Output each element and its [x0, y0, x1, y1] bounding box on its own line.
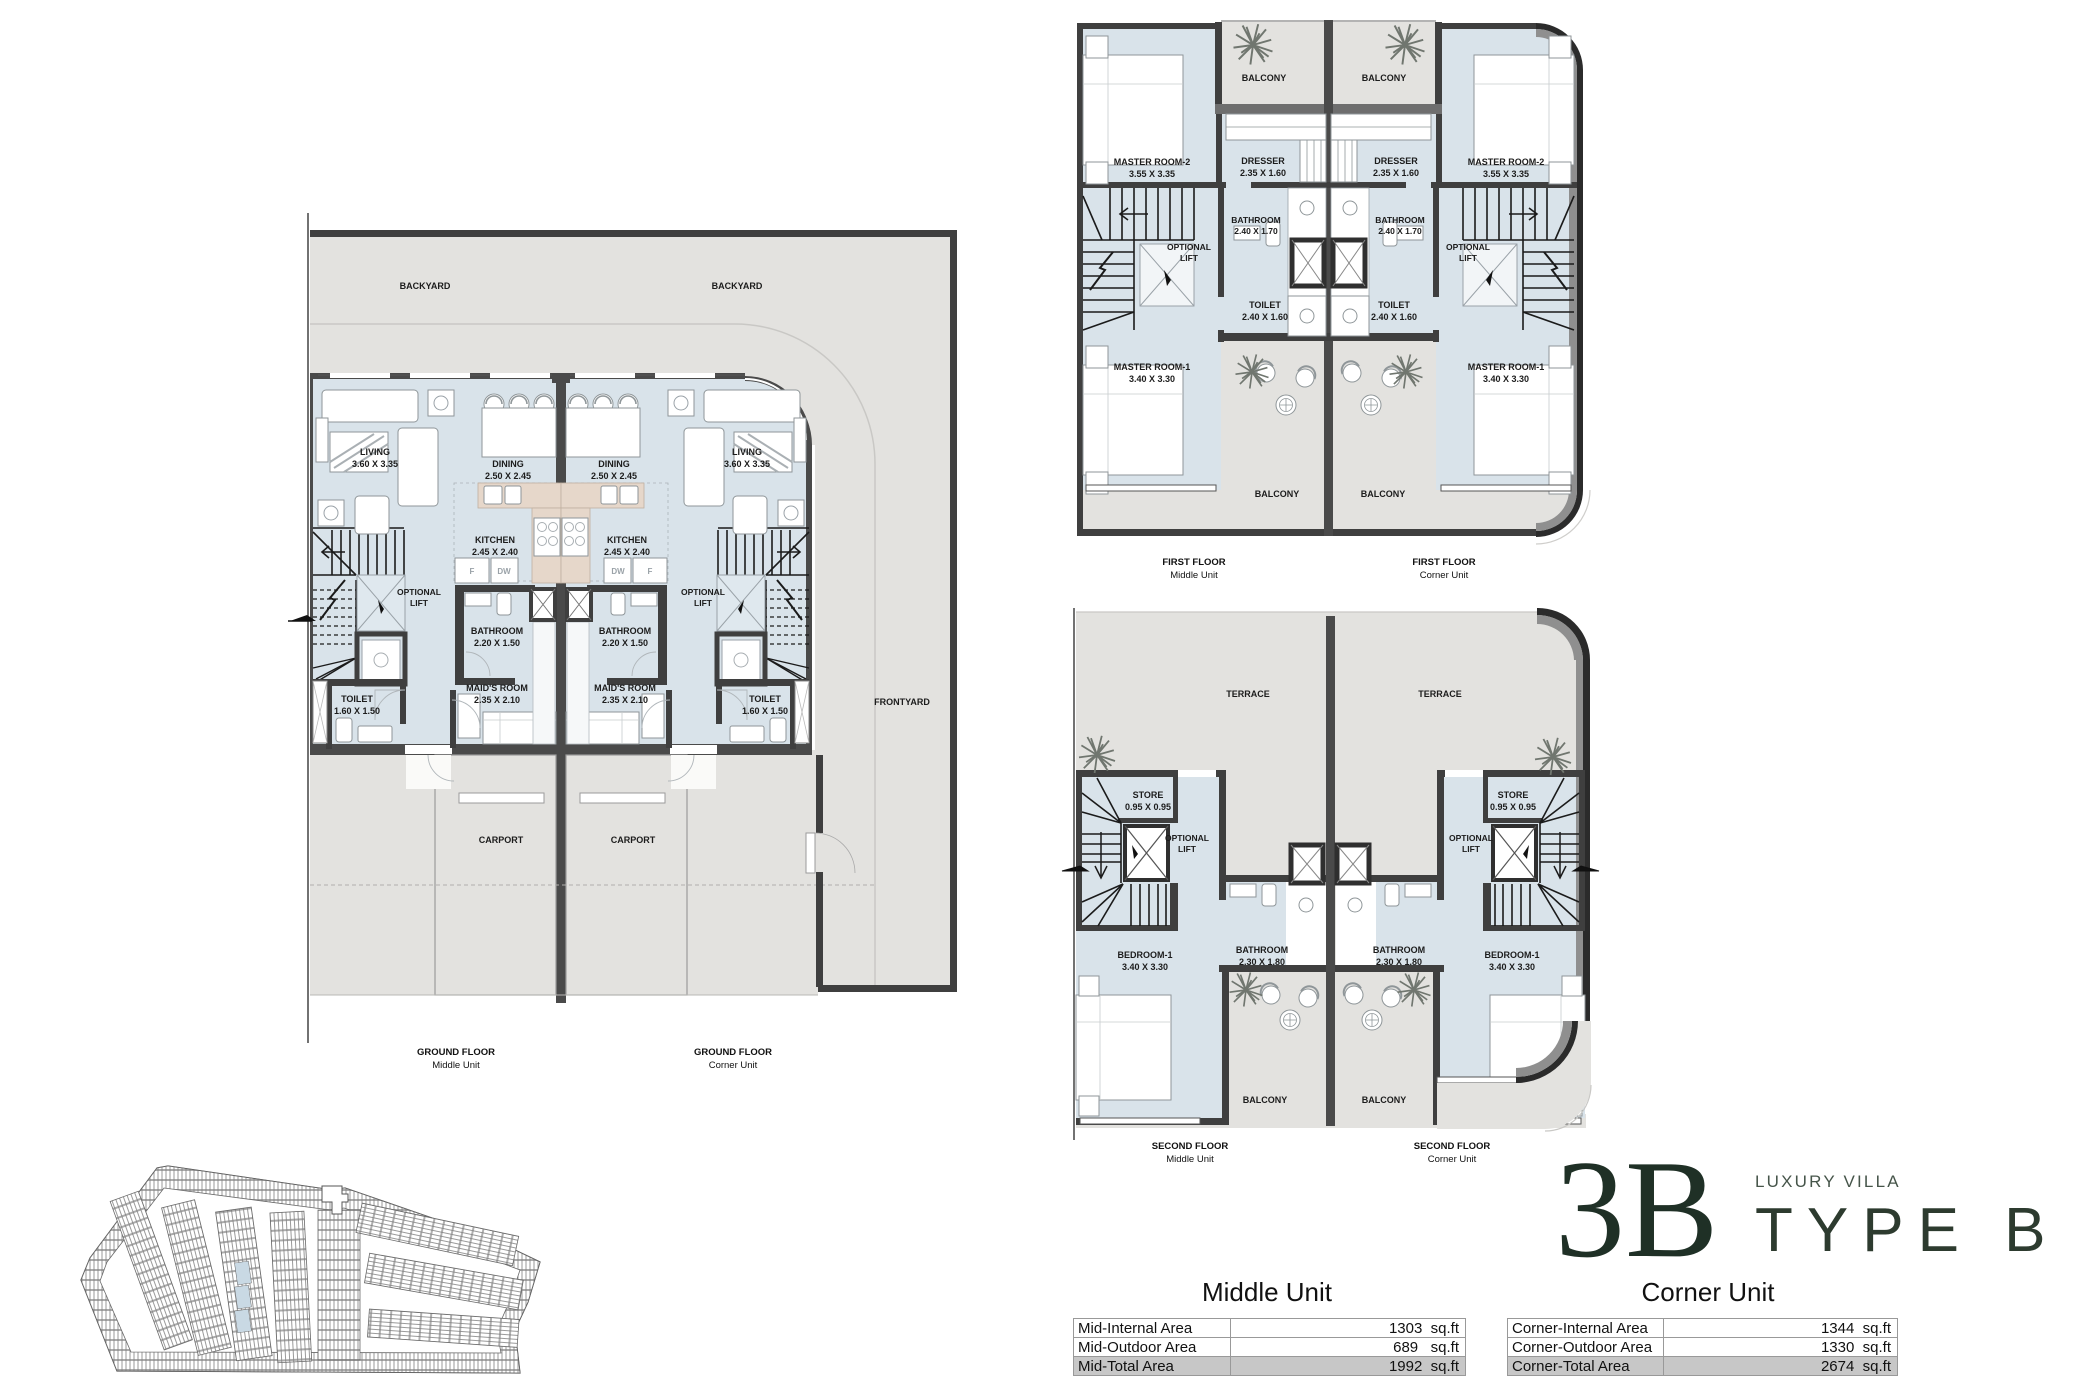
svg-text:KITCHEN: KITCHEN	[607, 535, 647, 545]
svg-text:TOILET: TOILET	[341, 694, 373, 704]
svg-text:LIFT: LIFT	[694, 598, 713, 608]
svg-text:DW: DW	[611, 567, 625, 576]
svg-text:BALCONY: BALCONY	[1255, 489, 1300, 499]
svg-text:3B: 3B	[1555, 1132, 1718, 1287]
svg-text:OPTIONAL: OPTIONAL	[1449, 833, 1493, 843]
svg-text:Middle Unit: Middle Unit	[1202, 1277, 1333, 1307]
svg-text:LIVING: LIVING	[360, 447, 390, 457]
svg-text:Middle Unit: Middle Unit	[432, 1060, 480, 1071]
svg-text:SECOND FLOOR: SECOND FLOOR	[1152, 1141, 1229, 1152]
svg-text:2.40 X 1.70: 2.40 X 1.70	[1234, 226, 1278, 236]
svg-text:3.55 X 3.35: 3.55 X 3.35	[1129, 169, 1175, 179]
svg-text:OPTIONAL: OPTIONAL	[1167, 242, 1211, 252]
svg-text:2.20 X 1.50: 2.20 X 1.50	[602, 638, 648, 648]
svg-text:3.55 X 3.35: 3.55 X 3.35	[1483, 169, 1529, 179]
svg-text:FIRST FLOOR: FIRST FLOOR	[1412, 557, 1475, 568]
svg-text:BATHROOM: BATHROOM	[471, 626, 523, 636]
svg-text:3.60 X 3.35: 3.60 X 3.35	[724, 459, 770, 469]
svg-text:DRESSER: DRESSER	[1374, 156, 1418, 166]
svg-text:BALCONY: BALCONY	[1242, 73, 1287, 83]
svg-text:1.60 X 1.50: 1.60 X 1.50	[334, 706, 380, 716]
svg-text:BEDROOM-1: BEDROOM-1	[1117, 950, 1172, 960]
svg-text:BEDROOM-1: BEDROOM-1	[1484, 950, 1539, 960]
svg-text:TYPE B: TYPE B	[1755, 1196, 2060, 1265]
svg-text:GROUND FLOOR: GROUND FLOOR	[694, 1047, 772, 1058]
svg-text:OPTIONAL: OPTIONAL	[397, 587, 441, 597]
svg-text:3.40 X 3.30: 3.40 X 3.30	[1489, 962, 1535, 972]
svg-text:LIFT: LIFT	[1459, 253, 1478, 263]
svg-text:SECOND FLOOR: SECOND FLOOR	[1414, 1141, 1491, 1152]
svg-text:BATHROOM: BATHROOM	[1236, 945, 1288, 955]
svg-text:Middle Unit: Middle Unit	[1170, 570, 1218, 581]
svg-text:3.40 X 3.30: 3.40 X 3.30	[1483, 374, 1529, 384]
svg-text:BALCONY: BALCONY	[1362, 1095, 1407, 1105]
svg-text:2.35 X 2.10: 2.35 X 2.10	[602, 695, 648, 705]
svg-text:DRESSER: DRESSER	[1241, 156, 1285, 166]
svg-text:LUXURY VILLA: LUXURY VILLA	[1755, 1172, 1901, 1191]
svg-text:2.30 X 1.80: 2.30 X 1.80	[1239, 957, 1285, 967]
svg-text:LIFT: LIFT	[1180, 253, 1199, 263]
svg-text:2.35 X 2.10: 2.35 X 2.10	[474, 695, 520, 705]
svg-text:Corner Unit: Corner Unit	[1420, 570, 1469, 581]
svg-text:1.60 X 1.50: 1.60 X 1.50	[742, 706, 788, 716]
svg-text:2.50 X 2.45: 2.50 X 2.45	[591, 471, 637, 481]
svg-text:MASTER ROOM-1: MASTER ROOM-1	[1114, 362, 1191, 372]
svg-text:Middle Unit: Middle Unit	[1166, 1154, 1214, 1165]
svg-text:F: F	[648, 567, 653, 576]
svg-text:DW: DW	[497, 567, 511, 576]
svg-text:BATHROOM: BATHROOM	[1375, 215, 1424, 225]
svg-text:STORE: STORE	[1498, 790, 1529, 800]
svg-text:Corner Unit: Corner Unit	[1428, 1154, 1477, 1165]
svg-text:CARPORT: CARPORT	[479, 835, 524, 845]
svg-text:MASTER ROOM-1: MASTER ROOM-1	[1468, 362, 1545, 372]
svg-text:TOILET: TOILET	[749, 694, 781, 704]
svg-text:BACKYARD: BACKYARD	[712, 281, 763, 291]
svg-text:MASTER ROOM-2: MASTER ROOM-2	[1114, 157, 1191, 167]
svg-text:BATHROOM: BATHROOM	[599, 626, 651, 636]
svg-text:BACKYARD: BACKYARD	[400, 281, 451, 291]
svg-text:MAID'S ROOM: MAID'S ROOM	[466, 683, 528, 693]
svg-text:3.40 X 3.30: 3.40 X 3.30	[1129, 374, 1175, 384]
svg-text:3.40 X 3.30: 3.40 X 3.30	[1122, 962, 1168, 972]
svg-text:2.45 X 2.40: 2.45 X 2.40	[472, 547, 518, 557]
svg-text:CARPORT: CARPORT	[611, 835, 656, 845]
svg-text:2.40 X 1.70: 2.40 X 1.70	[1378, 226, 1422, 236]
svg-text:DINING: DINING	[598, 459, 630, 469]
svg-text:LIFT: LIFT	[1178, 844, 1197, 854]
svg-text:BALCONY: BALCONY	[1243, 1095, 1288, 1105]
svg-text:BALCONY: BALCONY	[1361, 489, 1406, 499]
svg-text:OPTIONAL: OPTIONAL	[681, 587, 725, 597]
svg-text:LIVING: LIVING	[732, 447, 762, 457]
svg-text:F: F	[470, 567, 475, 576]
svg-text:2.30 X 1.80: 2.30 X 1.80	[1376, 957, 1422, 967]
svg-text:TERRACE: TERRACE	[1226, 689, 1270, 699]
svg-text:STORE: STORE	[1133, 790, 1164, 800]
svg-text:0.95 X 0.95: 0.95 X 0.95	[1125, 802, 1171, 812]
svg-text:BATHROOM: BATHROOM	[1231, 215, 1280, 225]
svg-text:2.40 X 1.60: 2.40 X 1.60	[1371, 312, 1417, 322]
svg-text:2.35 X 1.60: 2.35 X 1.60	[1373, 168, 1419, 178]
svg-text:TOILET: TOILET	[1249, 300, 1281, 310]
svg-text:GROUND FLOOR: GROUND FLOOR	[417, 1047, 495, 1058]
svg-text:DINING: DINING	[492, 459, 524, 469]
svg-text:0.95 X 0.95: 0.95 X 0.95	[1490, 802, 1536, 812]
svg-text:LIFT: LIFT	[410, 598, 429, 608]
svg-text:Corner Unit: Corner Unit	[1642, 1277, 1776, 1307]
svg-text:BATHROOM: BATHROOM	[1373, 945, 1425, 955]
svg-text:FRONTYARD: FRONTYARD	[874, 697, 930, 707]
svg-text:3.60 X 3.35: 3.60 X 3.35	[352, 459, 398, 469]
svg-text:2.50 X 2.45: 2.50 X 2.45	[485, 471, 531, 481]
svg-text:FIRST FLOOR: FIRST FLOOR	[1162, 557, 1225, 568]
svg-text:MASTER ROOM-2: MASTER ROOM-2	[1468, 157, 1545, 167]
svg-text:KITCHEN: KITCHEN	[475, 535, 515, 545]
svg-text:2.35 X 1.60: 2.35 X 1.60	[1240, 168, 1286, 178]
svg-text:2.20 X 1.50: 2.20 X 1.50	[474, 638, 520, 648]
svg-text:2.45 X 2.40: 2.45 X 2.40	[604, 547, 650, 557]
svg-text:OPTIONAL: OPTIONAL	[1165, 833, 1209, 843]
svg-text:OPTIONAL: OPTIONAL	[1446, 242, 1490, 252]
svg-text:MAID'S ROOM: MAID'S ROOM	[594, 683, 656, 693]
svg-text:Corner Unit: Corner Unit	[709, 1060, 758, 1071]
svg-text:2.40 X 1.60: 2.40 X 1.60	[1242, 312, 1288, 322]
svg-text:LIFT: LIFT	[1462, 844, 1481, 854]
svg-text:TOILET: TOILET	[1378, 300, 1410, 310]
svg-text:TERRACE: TERRACE	[1418, 689, 1462, 699]
svg-text:BALCONY: BALCONY	[1362, 73, 1407, 83]
